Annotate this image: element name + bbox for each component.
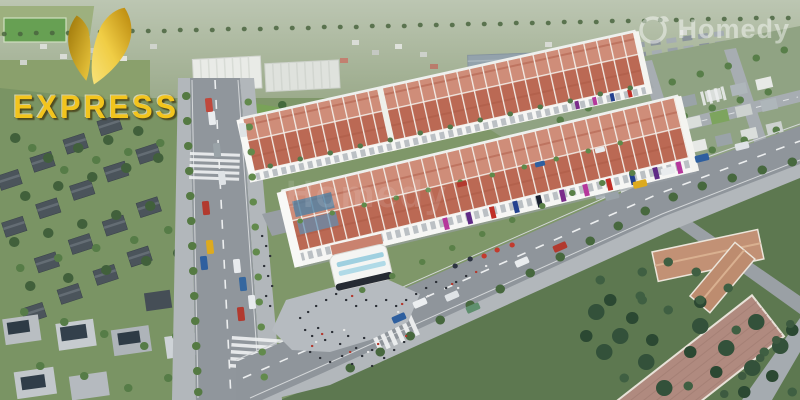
homedy-watermark-text: Homedy bbox=[677, 14, 790, 45]
aerial-scene bbox=[0, 0, 800, 400]
aerial-project-render: EXPRESS Homedy Homedy bbox=[0, 0, 800, 400]
left-neighborhood bbox=[0, 88, 203, 400]
homedy-logo-icon bbox=[636, 12, 670, 46]
homedy-watermark: Homedy bbox=[636, 12, 790, 46]
